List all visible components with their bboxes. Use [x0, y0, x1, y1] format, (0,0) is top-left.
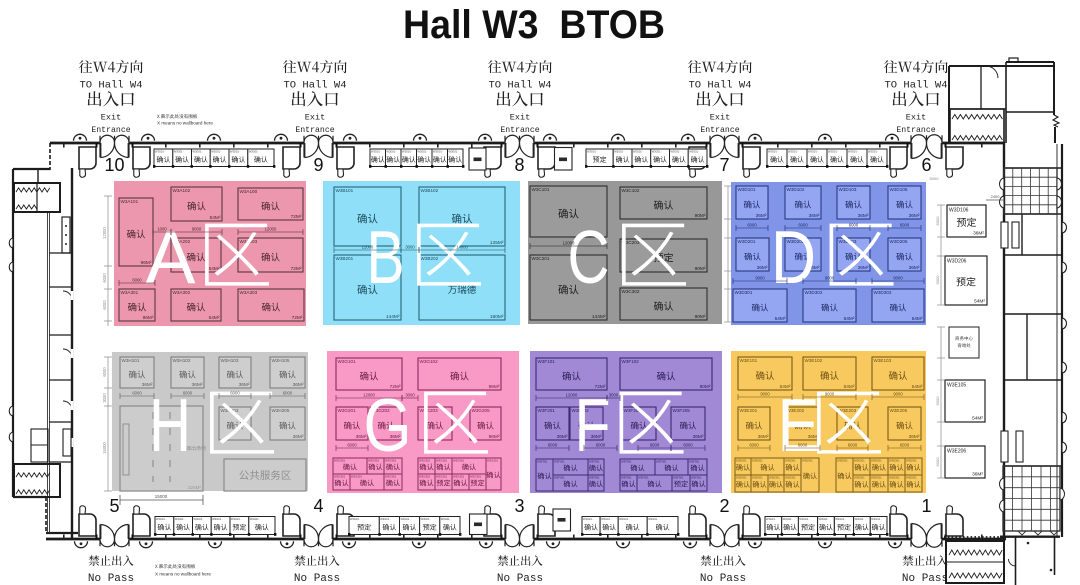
svg-text:W3G205: W3G205: [472, 408, 491, 413]
svg-text:90M²: 90M²: [695, 266, 706, 272]
svg-text:W3G203: W3G203: [420, 408, 439, 413]
svg-text:Exit: Exit: [906, 113, 926, 123]
svg-text:6: 6: [921, 155, 931, 175]
svg-text:12000: 12000: [362, 245, 374, 250]
svg-text:10: 10: [104, 155, 124, 175]
svg-text:W3G01··: W3G01··: [433, 149, 444, 153]
svg-text:15000: 15000: [102, 442, 107, 454]
svg-text:6000: 6000: [347, 443, 357, 448]
svg-text:9000: 9000: [893, 392, 903, 397]
svg-text:96M²: 96M²: [489, 434, 500, 440]
svg-text:36M²: 36M²: [192, 382, 203, 388]
svg-text:No Pass: No Pass: [902, 573, 948, 585]
svg-text:12000: 12000: [363, 393, 375, 398]
svg-text:6000: 6000: [798, 223, 808, 228]
svg-text:W3E206: W3E206: [947, 449, 966, 455]
svg-text:90M²: 90M²: [695, 314, 706, 320]
svg-text:W3E101: W3E101: [740, 358, 758, 363]
svg-text:90M²: 90M²: [695, 213, 706, 219]
svg-text:W3G01··: W3G01··: [212, 517, 223, 521]
svg-text:6000: 6000: [230, 391, 240, 396]
svg-text:W3G01··: W3G01··: [583, 517, 594, 521]
svg-text:W3G01··: W3G01··: [648, 517, 659, 521]
svg-text:9000: 9000: [825, 392, 835, 397]
svg-text:6000: 6000: [900, 443, 910, 448]
svg-text:TO Hall W4: TO Hall W4: [79, 80, 142, 92]
svg-text:W3F301: W3F301: [673, 475, 684, 479]
svg-text:W3G01··: W3G01··: [175, 517, 186, 521]
svg-text:W3F301: W3F301: [689, 459, 700, 463]
svg-text:W3D106: W3D106: [949, 208, 969, 214]
svg-text:54M²: 54M²: [844, 316, 855, 322]
svg-text:36M²: 36M²: [758, 434, 769, 440]
svg-text:2: 2: [719, 496, 729, 516]
svg-text:1: 1: [921, 496, 931, 516]
svg-text:A: A: [146, 215, 196, 299]
svg-text:W3F101: W3F101: [538, 359, 556, 364]
svg-text:6000: 6000: [283, 391, 293, 396]
svg-text:W3G102: W3G102: [420, 359, 439, 364]
svg-text:36M²: 36M²: [756, 213, 767, 219]
svg-text:W3G301: W3G301: [470, 474, 481, 478]
svg-text:6000: 6000: [102, 273, 107, 283]
svg-text:B: B: [367, 215, 405, 299]
svg-text:W3G01··: W3G01··: [766, 517, 777, 521]
svg-text:W3G01··: W3G01··: [652, 149, 663, 153]
svg-text:54M²: 54M²: [844, 384, 855, 390]
svg-text:9000: 9000: [935, 396, 940, 406]
svg-text:W3G301: W3G301: [334, 474, 345, 478]
svg-text:36M²: 36M²: [693, 434, 704, 440]
svg-text:36M²: 36M²: [858, 265, 869, 271]
svg-text:180M²: 180M²: [490, 314, 504, 320]
svg-text:W3G01··: W3G01··: [768, 149, 779, 153]
svg-text:W3A100: W3A100: [240, 189, 258, 194]
svg-text:6000: 6000: [747, 223, 757, 228]
svg-text:D: D: [771, 215, 816, 299]
svg-text:54M²: 54M²: [972, 416, 983, 422]
svg-text:W3B101: W3B101: [336, 188, 354, 193]
svg-text:W3H101: W3H101: [122, 358, 140, 363]
svg-text:72M²: 72M²: [291, 214, 302, 220]
svg-text:No Pass: No Pass: [88, 573, 134, 585]
svg-text:W3G01··: W3G01··: [441, 517, 452, 521]
svg-text:Entrance: Entrance: [91, 126, 130, 135]
svg-text:W3G301: W3G301: [487, 458, 498, 462]
svg-text:W3G01··: W3G01··: [155, 149, 166, 153]
svg-text:TO Hall W4: TO Hall W4: [688, 80, 751, 92]
svg-text:36M²: 36M²: [909, 434, 920, 440]
svg-text:W3D205: W3D205: [890, 239, 908, 244]
svg-text:12000: 12000: [563, 241, 575, 246]
svg-text:W3G01··: W3G01··: [156, 517, 167, 521]
svg-text:No Pass: No Pass: [700, 573, 746, 585]
svg-text:W3G301: W3G301: [419, 458, 430, 462]
svg-text:W3F301: W3F301: [621, 475, 632, 479]
svg-text:H: H: [149, 383, 191, 467]
svg-text:8: 8: [514, 155, 524, 175]
svg-text:W3G301: W3G301: [436, 474, 447, 478]
svg-text:36M²: 36M²: [858, 213, 869, 219]
svg-text:W3E301: W3E301: [871, 458, 882, 462]
svg-text:6000: 6000: [683, 443, 693, 448]
svg-text:W3H102: W3H102: [173, 358, 191, 363]
svg-text:3: 3: [514, 496, 524, 516]
svg-text:W3G01··: W3G01··: [868, 149, 879, 153]
svg-text:W3G01··: W3G01··: [193, 149, 204, 153]
svg-text:W3E105: W3E105: [947, 383, 966, 389]
svg-text:X means no wallboard here: X means no wallboard here: [155, 572, 211, 577]
svg-text:W3G301: W3G301: [385, 474, 396, 478]
svg-text:W3D102: W3D102: [787, 187, 805, 192]
svg-text:W3G301: W3G301: [453, 474, 464, 478]
svg-text:X means no wallboard here: X means no wallboard here: [157, 121, 213, 126]
svg-text:225M²: 225M²: [188, 485, 201, 490]
svg-text:W3D303: W3D303: [874, 290, 892, 295]
svg-text:W3F102: W3F102: [622, 359, 640, 364]
svg-text:W3G301: W3G301: [453, 458, 464, 462]
svg-text:W3E301: W3E301: [854, 475, 865, 479]
svg-text:W3F301: W3F301: [656, 459, 667, 463]
svg-text:12000: 12000: [102, 227, 107, 239]
svg-text:W3H205: W3H205: [272, 408, 290, 413]
svg-text:9000: 9000: [760, 392, 770, 397]
svg-text:6000: 6000: [848, 443, 858, 448]
svg-text:W3F301: W3F301: [691, 475, 702, 479]
svg-text:W3E301: W3E301: [736, 475, 747, 479]
svg-text:W3C101: W3C101: [532, 187, 550, 192]
svg-text:W3C201: W3C201: [532, 256, 550, 261]
svg-text:6000: 6000: [102, 300, 107, 310]
svg-text:W3F205: W3F205: [673, 408, 691, 413]
svg-text:W3E103: W3E103: [874, 358, 892, 363]
svg-text:6000: 6000: [798, 443, 808, 448]
svg-text:W3G01··: W3G01··: [402, 149, 413, 153]
svg-text:6000: 6000: [849, 223, 859, 228]
svg-text:W3F301: W3F301: [589, 475, 600, 479]
svg-text:W3G01··: W3G01··: [670, 149, 681, 153]
svg-text:W3A101: W3A101: [121, 199, 139, 204]
svg-text:3000: 3000: [102, 393, 107, 403]
svg-text:W3E201: W3E201: [740, 408, 758, 413]
svg-text:W3G301: W3G301: [419, 474, 430, 478]
svg-text:Exit: Exit: [101, 113, 121, 123]
svg-text:4: 4: [313, 496, 323, 516]
svg-text:W3D301: W3D301: [735, 290, 753, 295]
svg-text:W3G01··: W3G01··: [174, 149, 185, 153]
svg-text:W3E301: W3E301: [871, 475, 882, 479]
svg-text:6000: 6000: [132, 278, 142, 283]
svg-text:W3G01··: W3G01··: [871, 517, 882, 521]
svg-text:W3F301: W3F301: [554, 459, 565, 463]
svg-text:7: 7: [719, 155, 729, 175]
svg-text:12000: 12000: [265, 227, 277, 232]
svg-text:W3B202: W3B202: [421, 256, 439, 261]
svg-text:W3G01··: W3G01··: [250, 517, 261, 521]
svg-text:E: E: [778, 383, 820, 467]
svg-text:W3G01··: W3G01··: [380, 517, 391, 521]
svg-text:96M²: 96M²: [489, 384, 500, 390]
svg-text:9: 9: [313, 155, 323, 175]
svg-text:6000: 6000: [935, 457, 940, 467]
svg-text:6000: 6000: [749, 443, 759, 448]
svg-text:W3G01··: W3G01··: [689, 149, 700, 153]
svg-text:9000: 9000: [755, 276, 765, 281]
svg-text:W3G01··: W3G01··: [249, 149, 260, 153]
svg-text:W3E301: W3E301: [854, 458, 865, 462]
svg-text:W3E301: W3E301: [752, 475, 763, 479]
svg-text:W3G01··: W3G01··: [211, 149, 222, 153]
svg-text:W3D201: W3D201: [738, 239, 756, 244]
svg-text:W3E301: W3E301: [769, 475, 780, 479]
svg-text:W3C302: W3C302: [622, 289, 640, 294]
svg-text:W3G01··: W3G01··: [835, 517, 846, 521]
svg-text:Entrance: Entrance: [500, 126, 539, 135]
svg-text:W3G01··: W3G01··: [230, 149, 241, 153]
svg-text:72M²: 72M²: [291, 266, 302, 272]
svg-text:5: 5: [109, 496, 119, 516]
svg-text:W3G01··: W3G01··: [449, 149, 460, 153]
svg-text:W3E301: W3E301: [906, 458, 917, 462]
svg-text:Hall W3 BTOB: Hall W3 BTOB: [403, 3, 665, 47]
svg-text:No Pass: No Pass: [294, 573, 340, 585]
svg-text:W3G01··: W3G01··: [855, 517, 866, 521]
svg-text:TO Hall W4: TO Hall W4: [884, 80, 947, 92]
svg-text:W3G01··: W3G01··: [783, 517, 794, 521]
svg-text:6000: 6000: [548, 443, 558, 448]
svg-text:5000: 5000: [930, 176, 940, 181]
svg-text:W3G01··: W3G01··: [788, 149, 799, 153]
svg-text:72M²: 72M²: [292, 315, 303, 321]
svg-text:W3H105: W3H105: [272, 358, 290, 363]
svg-text:F: F: [575, 383, 611, 467]
svg-text:6000: 6000: [102, 367, 107, 377]
svg-text:36M²: 36M²: [557, 434, 568, 440]
svg-text:W3F201: W3F201: [538, 408, 556, 413]
svg-text:54M²: 54M²: [912, 384, 923, 390]
svg-text:9000: 9000: [192, 227, 202, 232]
svg-text:9000: 9000: [935, 275, 940, 285]
svg-text:W3G01··: W3G01··: [848, 149, 859, 153]
svg-text:144M²: 144M²: [386, 314, 400, 320]
svg-text:9000: 9000: [893, 276, 903, 281]
svg-text:144M²: 144M²: [592, 314, 606, 320]
svg-text:54M²: 54M²: [974, 299, 985, 305]
svg-text:W3C102: W3C102: [622, 188, 640, 193]
svg-text:W3A301: W3A301: [121, 290, 139, 295]
svg-text:W3G01··: W3G01··: [633, 149, 644, 153]
svg-text:W3F301: W3F301: [537, 459, 548, 463]
svg-text:C: C: [568, 215, 610, 299]
svg-text:W3G01··: W3G01··: [808, 149, 819, 153]
svg-text:6000: 6000: [132, 391, 142, 396]
svg-text:W3G01··: W3G01··: [387, 149, 398, 153]
svg-text:W3G01··: W3G01··: [799, 517, 810, 521]
svg-text:W3E205: W3E205: [890, 408, 908, 413]
svg-text:W3A303: W3A303: [240, 290, 258, 295]
svg-text:W3G201: W3G201: [338, 408, 357, 413]
svg-text:3000: 3000: [405, 393, 415, 398]
svg-text:W3F301: W3F301: [621, 459, 632, 463]
svg-text:Exit: Exit: [710, 113, 730, 123]
svg-text:14000: 14000: [456, 245, 468, 250]
svg-text:W3A102: W3A102: [173, 188, 191, 193]
svg-text:36M²: 36M²: [293, 382, 304, 388]
svg-text:9000: 9000: [825, 276, 835, 281]
svg-text:W3E301: W3E301: [889, 475, 900, 479]
svg-text:15000: 15000: [155, 494, 168, 499]
svg-text:W3E301: W3E301: [785, 475, 796, 479]
svg-text:W3G01··: W3G01··: [400, 517, 411, 521]
svg-text:W3G01··: W3G01··: [819, 517, 830, 521]
svg-text:W3G01··: W3G01··: [614, 149, 625, 153]
svg-text:36M²: 36M²: [973, 231, 984, 237]
svg-text:W3E301: W3E301: [889, 458, 900, 462]
svg-text:W3G301: W3G301: [436, 458, 447, 462]
svg-text:W3B102: W3B102: [421, 188, 439, 193]
svg-text:W3D206: W3D206: [947, 259, 967, 265]
svg-text:6000: 6000: [650, 443, 660, 448]
svg-text:54M²: 54M²: [210, 215, 221, 221]
svg-text:12000: 12000: [566, 393, 578, 398]
svg-text:W3G01··: W3G01··: [194, 517, 205, 521]
svg-text:1000: 1000: [157, 227, 167, 232]
svg-text:54M²: 54M²: [775, 316, 786, 322]
svg-text:W3F301: W3F301: [554, 475, 565, 479]
svg-text:W3E301: W3E301: [752, 458, 763, 462]
svg-text:W3F301: W3F301: [638, 475, 649, 479]
svg-text:No Pass: No Pass: [497, 573, 543, 585]
svg-text:135M²: 135M²: [490, 240, 504, 246]
svg-text:W3D105: W3D105: [890, 187, 908, 192]
svg-text:90M²: 90M²: [700, 384, 711, 390]
svg-text:W3G301: W3G301: [351, 474, 362, 478]
svg-text:W3H103: W3H103: [221, 358, 239, 363]
svg-text:36M²: 36M²: [239, 382, 250, 388]
svg-text:W3E102: W3E102: [805, 358, 823, 363]
svg-text:TO Hall W4: TO Hall W4: [488, 80, 551, 92]
svg-text:W3G301: W3G301: [334, 458, 345, 462]
svg-text:3000: 3000: [405, 245, 415, 250]
svg-text:W3G01··: W3G01··: [587, 149, 598, 153]
svg-text:W3E301: W3E301: [736, 458, 747, 462]
svg-text:W3G01··: W3G01··: [231, 517, 242, 521]
svg-text:W3D103: W3D103: [839, 187, 857, 192]
svg-text:36M²: 36M²: [909, 213, 920, 219]
svg-text:TO Hall W4: TO Hall W4: [283, 80, 346, 92]
svg-text:2400: 2400: [991, 194, 1001, 199]
svg-text:W3G01··: W3G01··: [619, 517, 630, 521]
svg-text:W3B201: W3B201: [336, 256, 354, 261]
svg-text:36M²: 36M²: [757, 265, 768, 271]
svg-text:Entrance: Entrance: [295, 126, 334, 135]
svg-text:36M²: 36M²: [972, 472, 983, 478]
svg-text:W3G01··: W3G01··: [371, 149, 382, 153]
svg-text:Exit: Exit: [305, 113, 325, 123]
svg-text:36M²: 36M²: [293, 434, 304, 440]
svg-text:W3D101: W3D101: [738, 187, 756, 192]
svg-text:W3E301: W3E301: [837, 458, 848, 462]
svg-text:6000: 6000: [596, 443, 606, 448]
svg-text:54M²: 54M²: [209, 315, 220, 321]
svg-text:Entrance: Entrance: [700, 126, 739, 135]
svg-text:W3G01··: W3G01··: [828, 149, 839, 153]
svg-text:W3G01··: W3G01··: [601, 517, 612, 521]
svg-text:3000: 3000: [609, 393, 619, 398]
svg-text:54M²: 54M²: [912, 316, 923, 322]
svg-text:6000: 6000: [900, 223, 910, 228]
svg-text:W3E301: W3E301: [906, 475, 917, 479]
svg-text:W3G01··: W3G01··: [350, 517, 361, 521]
svg-text:6000: 6000: [935, 216, 940, 226]
svg-text:W3G01··: W3G01··: [418, 149, 429, 153]
svg-text:6000: 6000: [183, 391, 193, 396]
svg-text:Entrance: Entrance: [896, 126, 935, 135]
svg-text:W3G101: W3G101: [338, 359, 357, 364]
svg-text:36M²: 36M²: [909, 265, 920, 271]
svg-text:W3G01··: W3G01··: [421, 517, 432, 521]
svg-text:Exit: Exit: [510, 113, 530, 123]
svg-text:96M²: 96M²: [143, 315, 154, 321]
